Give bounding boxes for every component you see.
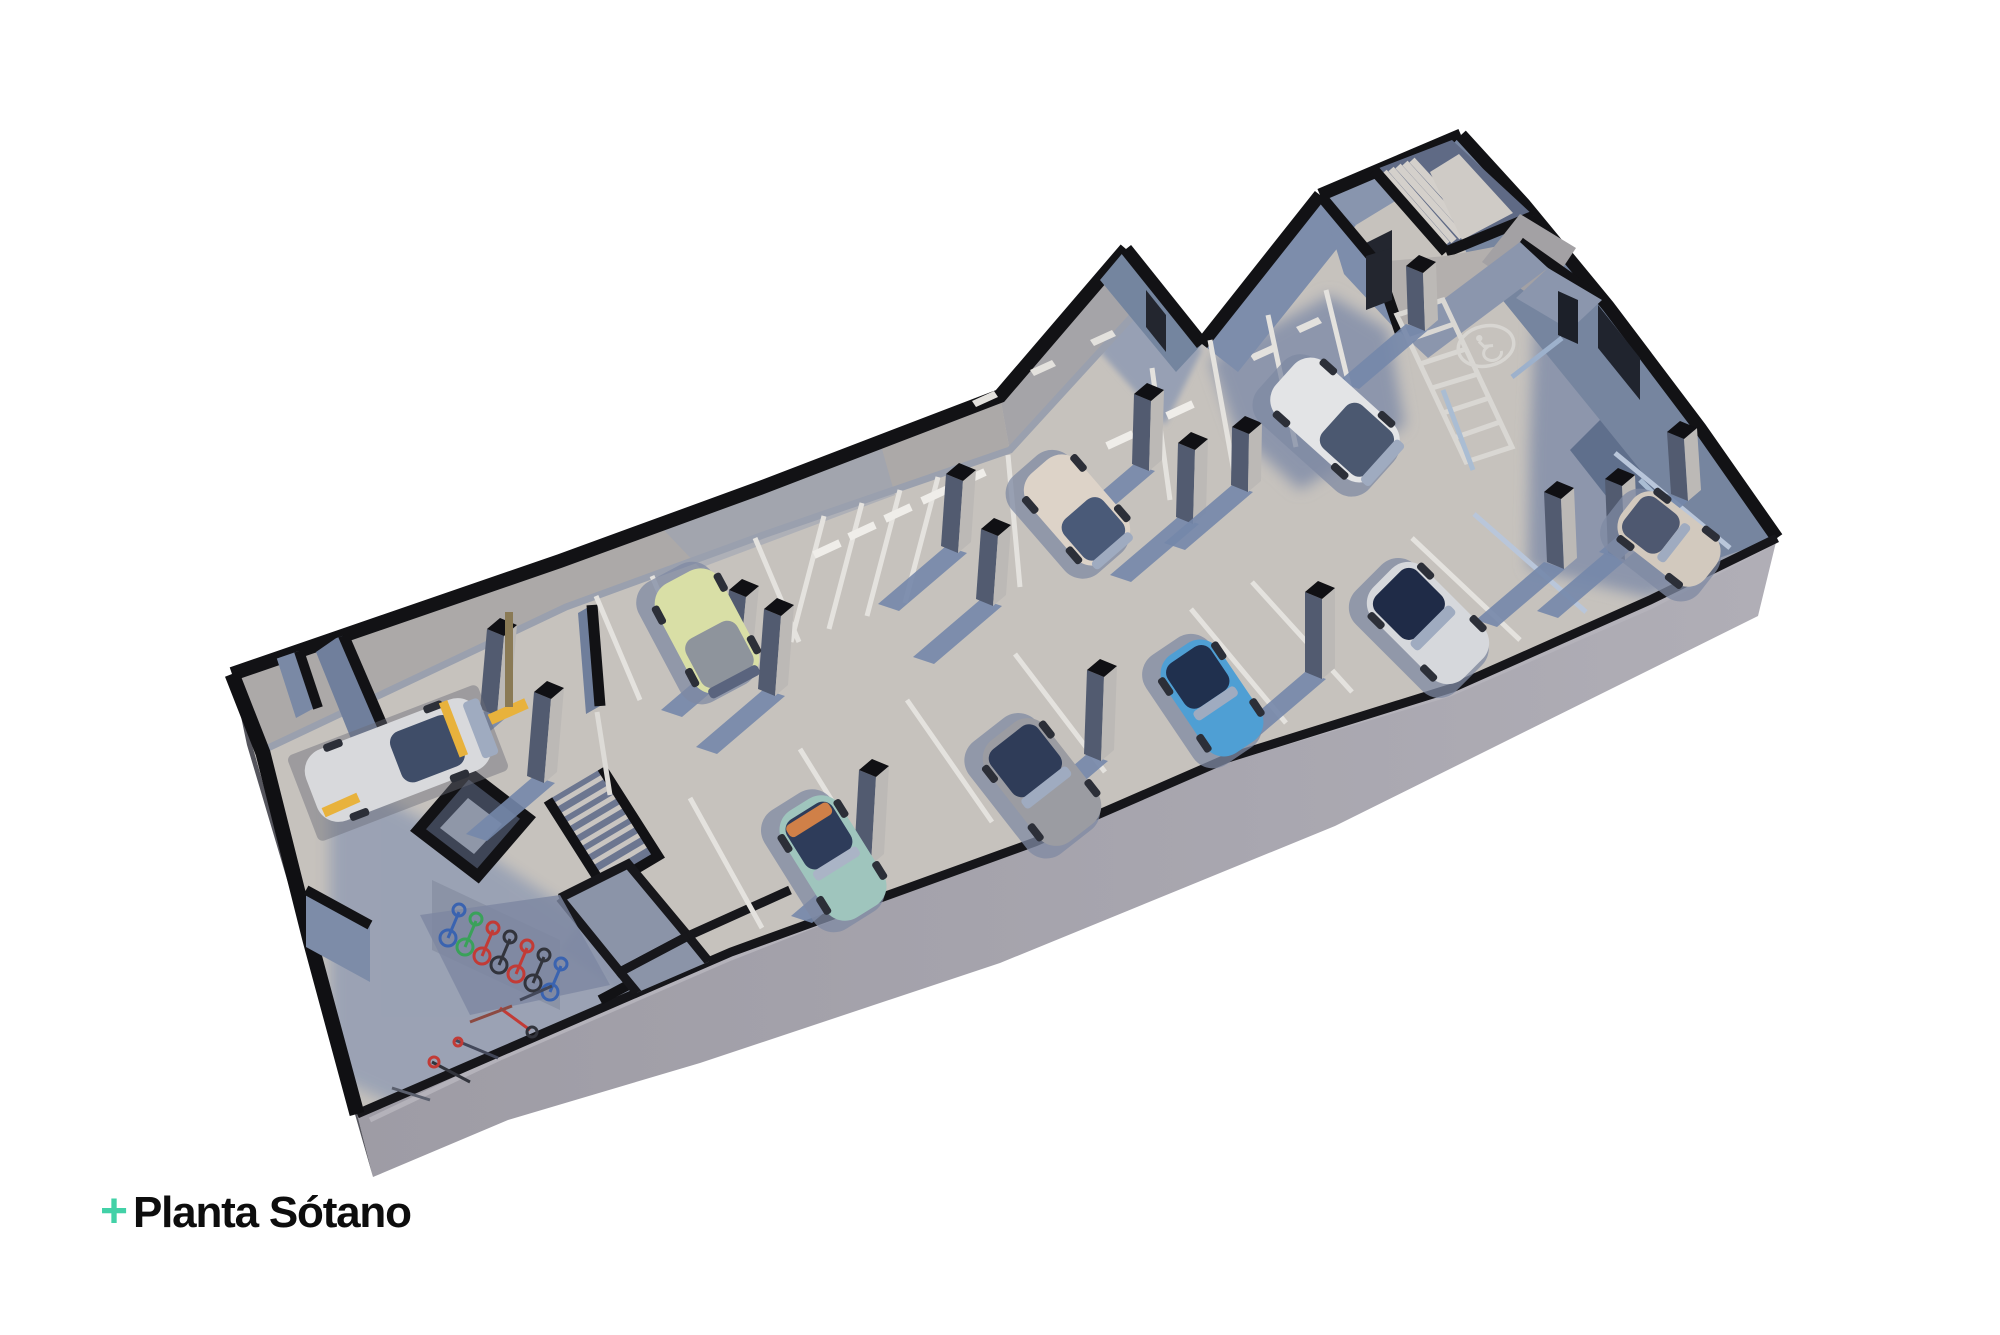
svg-text:+: + (100, 1185, 128, 1238)
svg-text:Planta Sótano: Planta Sótano (133, 1188, 411, 1237)
